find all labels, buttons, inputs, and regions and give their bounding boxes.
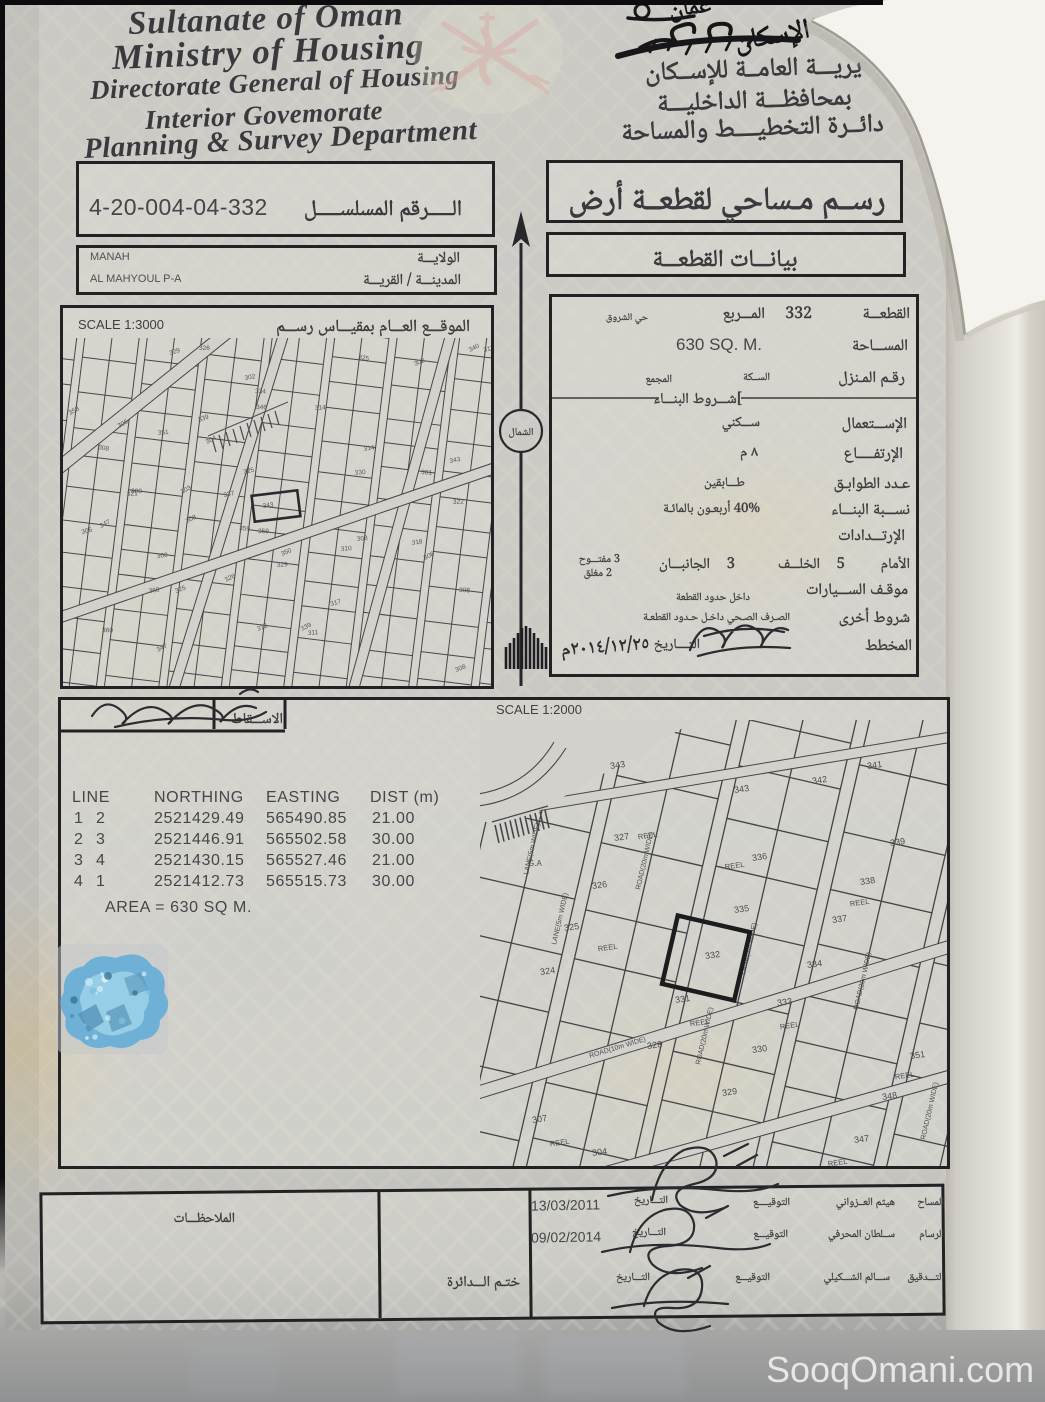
svg-text:329: 329: [277, 561, 289, 569]
svg-text:REEL: REEL: [827, 1157, 848, 1169]
svg-text:338: 338: [859, 875, 875, 887]
svg-text:REEL: REEL: [779, 1020, 800, 1032]
svg-text:359: 359: [258, 528, 269, 535]
svg-text:314: 314: [363, 444, 375, 453]
svg-text:351: 351: [157, 429, 169, 437]
svg-text:358: 358: [68, 405, 81, 416]
svg-text:335: 335: [733, 903, 749, 915]
svg-text:REEL: REEL: [597, 942, 618, 954]
svg-text:333: 333: [776, 996, 792, 1008]
svg-text:343: 343: [609, 759, 625, 771]
svg-text:351: 351: [909, 1049, 925, 1061]
svg-text:325: 325: [358, 354, 370, 363]
svg-text:326: 326: [591, 879, 607, 891]
svg-text:322: 322: [453, 499, 464, 506]
svg-text:343: 343: [449, 456, 461, 465]
svg-text:346: 346: [256, 404, 267, 411]
svg-text:REEL: REEL: [849, 897, 870, 909]
svg-text:330: 330: [354, 469, 366, 477]
svg-text:308: 308: [459, 587, 470, 594]
svg-text:308: 308: [356, 535, 368, 543]
svg-text:LANE(5m WIDE): LANE(5m WIDE): [551, 892, 570, 945]
svg-text:300: 300: [156, 552, 168, 560]
svg-text:347: 347: [156, 642, 169, 654]
svg-text:340: 340: [468, 342, 481, 353]
svg-text:341: 341: [866, 759, 882, 771]
svg-text:347: 347: [99, 518, 112, 529]
svg-text:327: 327: [613, 831, 629, 843]
svg-text:360: 360: [102, 627, 113, 634]
svg-text:306: 306: [423, 550, 436, 561]
svg-text:343: 343: [733, 783, 749, 795]
svg-text:336: 336: [751, 851, 767, 863]
svg-text:348: 348: [881, 1090, 897, 1102]
svg-text:332: 332: [704, 949, 720, 961]
svg-text:308: 308: [185, 514, 198, 525]
svg-text:339: 339: [889, 836, 905, 848]
svg-text:301: 301: [421, 469, 433, 477]
svg-text:339: 339: [197, 413, 210, 423]
svg-text:308: 308: [98, 444, 110, 453]
svg-text:311: 311: [308, 629, 319, 637]
svg-text:317: 317: [330, 598, 343, 608]
svg-text:302: 302: [413, 357, 426, 368]
svg-text:308: 308: [454, 663, 467, 674]
svg-text:306: 306: [81, 526, 94, 536]
svg-text:REEL: REEL: [549, 1137, 570, 1149]
svg-text:307: 307: [531, 1113, 547, 1125]
svg-text:337: 337: [831, 913, 847, 925]
svg-text:G.A: G.A: [528, 859, 542, 868]
svg-text:347: 347: [853, 1133, 869, 1145]
svg-text:343: 343: [262, 501, 274, 509]
svg-text:334: 334: [806, 958, 822, 970]
svg-text:314: 314: [315, 404, 327, 412]
svg-text:342: 342: [811, 774, 827, 786]
svg-text:360: 360: [148, 586, 160, 594]
svg-text:324: 324: [539, 965, 555, 977]
svg-text:328: 328: [646, 1039, 662, 1051]
svg-text:330: 330: [751, 1043, 767, 1055]
svg-text:326: 326: [199, 345, 210, 352]
svg-text:329: 329: [721, 1086, 737, 1098]
svg-text:311: 311: [483, 345, 495, 354]
svg-text:310: 310: [341, 545, 353, 553]
svg-text:325: 325: [174, 584, 187, 594]
svg-text:331: 331: [674, 993, 690, 1005]
svg-text:329: 329: [169, 347, 182, 357]
svg-text:REEL: REEL: [724, 860, 745, 872]
svg-text:304: 304: [205, 434, 218, 445]
svg-text:304: 304: [591, 1146, 607, 1158]
svg-text:334: 334: [255, 388, 266, 395]
svg-text:350: 350: [280, 547, 293, 558]
svg-text:325: 325: [563, 921, 579, 933]
svg-text:REEL: REEL: [894, 1070, 915, 1082]
svg-text:325: 325: [243, 467, 256, 476]
svg-text:318: 318: [411, 538, 423, 547]
svg-text:321: 321: [127, 490, 139, 498]
svg-text:302: 302: [244, 373, 256, 382]
svg-text:359: 359: [239, 525, 251, 533]
svg-text:312: 312: [256, 622, 269, 633]
